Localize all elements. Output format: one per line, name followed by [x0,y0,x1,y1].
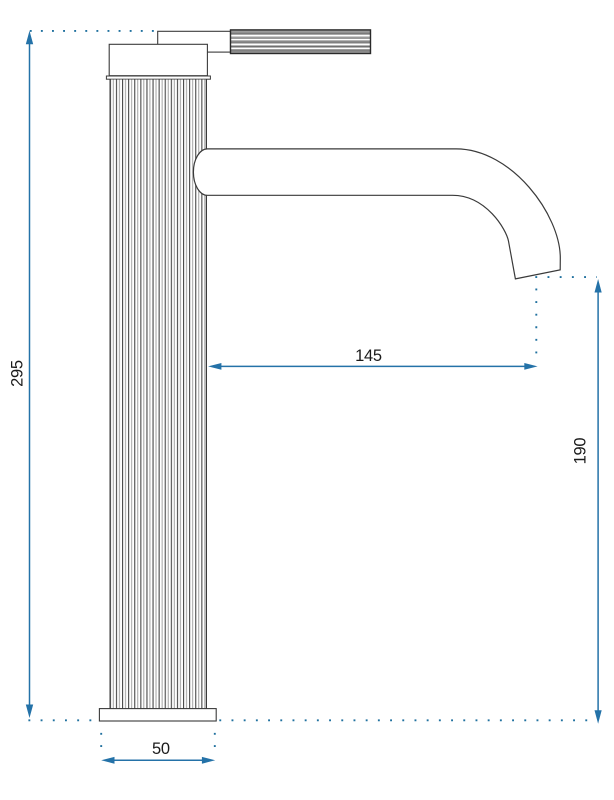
svg-text:190: 190 [572,438,590,465]
svg-text:295: 295 [9,360,27,387]
svg-text:145: 145 [355,347,382,365]
svg-text:50: 50 [152,740,170,758]
